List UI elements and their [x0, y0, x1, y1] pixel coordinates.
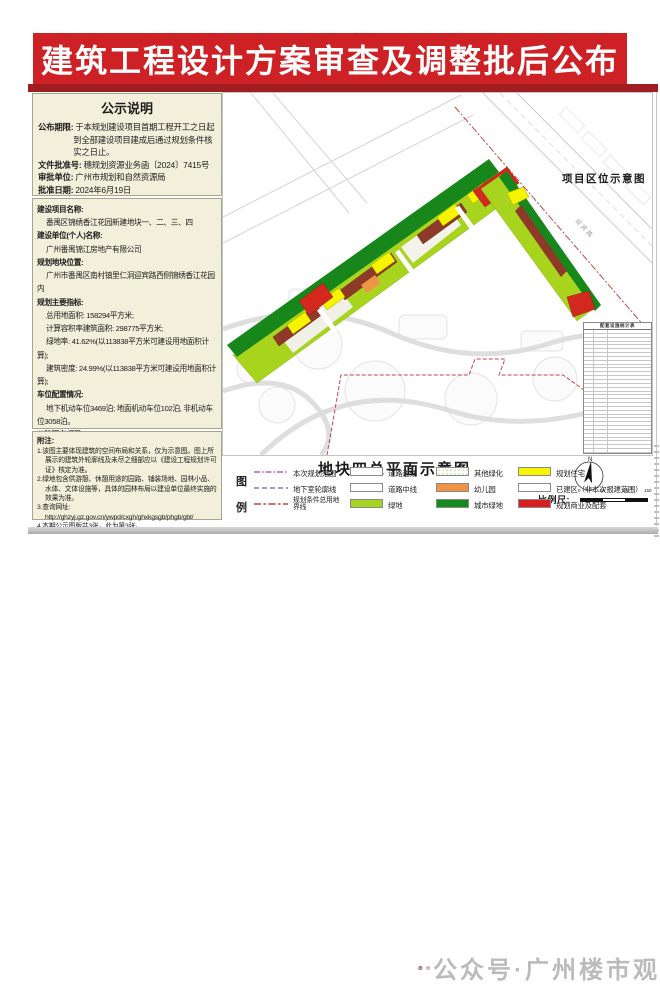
legend-label: 规划条件总用地界线: [293, 497, 345, 512]
legend-label: 城市绿地: [474, 500, 503, 511]
legend-box-symbol: [350, 483, 383, 492]
project-info-line: 广州市番禺区南村镇里仁洞迎宾路西侧锦绣香江花园内: [37, 269, 217, 295]
notice-item-value: 穗规划资源业务函〔2024〕7415号: [81, 159, 216, 172]
legend-label: 道路边线: [388, 468, 417, 479]
watermark: 公众号·广州楼市观: [418, 950, 660, 985]
legend-line-symbol: [254, 486, 288, 490]
project-info-line: 计算容积率建筑面积: 298775平方米;: [37, 322, 217, 335]
legend-label: 绿地: [388, 500, 402, 511]
notes-title: 附注:: [37, 435, 217, 446]
project-info-line: 规划主要指标:: [37, 296, 217, 309]
legend-label: 规划商业及配套: [556, 500, 606, 511]
legend-box-symbol: [518, 483, 551, 492]
location-map-label: 项目区位示意图: [562, 171, 646, 186]
notice-item: 公布期限: 于本规划建设项目首期工程开工之日起到全部建设项目建成后通过规划条件核…: [38, 121, 216, 159]
project-info-line: 地下机动车位3469泊; 地面机动车位102泊, 非机动车位3058泊。: [37, 402, 217, 428]
scale-tick-label: 150: [644, 488, 652, 493]
notice-item-value: 广州市规划和自然资源局: [73, 171, 216, 184]
scale-tick-label: 0: [578, 488, 581, 493]
notice-item: 批准日期: 2024年6月19日: [38, 184, 216, 197]
notice-item-label: 公布期限:: [38, 121, 73, 159]
legend-box-symbol: [350, 467, 383, 476]
legend-box-symbol: [350, 499, 383, 508]
bottom-divider-bar: [28, 527, 658, 534]
legend-line-symbol: [254, 502, 288, 506]
notice-items: 公布期限: 于本规划建设项目首期工程开工之日起到全部建设项目建成后通过规划条件核…: [38, 121, 216, 197]
notice-item-value: 2024年6月19日: [73, 184, 216, 197]
public-notice-panel: 公示说明 公布期限: 于本规划建设项目首期工程开工之日起到全部建设项目建成后通过…: [32, 93, 222, 196]
notice-item-label: 批准日期:: [38, 184, 73, 197]
notice-item-label: 审批单位:: [38, 171, 73, 184]
project-info-line: 总用地面积: 158294平方米;: [37, 309, 217, 322]
notice-item: 审批单位: 广州市规划和自然资源局: [38, 171, 216, 184]
facilities-table-row: [584, 449, 651, 453]
legend-box-symbol: [436, 499, 469, 508]
project-info-panel: 建设项目名称:番禺区锦绣香江花园新建地块一、二、三、四建设单位(个人)名称:广州…: [32, 198, 222, 429]
legend-label: 幼儿园: [474, 484, 496, 495]
page-title: 建筑工程设计方案审查及调整批后公布: [41, 36, 619, 82]
project-info-line: 番禺区锦绣香江花园新建地块一、二、三、四: [37, 216, 217, 229]
project-info-line: 车位配置情况:: [37, 388, 217, 401]
legend-section: 地块四总平面示意图 N 比例尺: 公众号·广州楼市观 图例本次规划范围地下室轮廓…: [0, 455, 660, 535]
watermark-text: 公众号·广州楼市观: [433, 950, 660, 985]
notice-item: 文件批准号: 穗规划资源业务函〔2024〕7415号: [38, 159, 216, 172]
legend-key-char: 例: [236, 499, 247, 515]
legend-label: 本次规划范围: [293, 468, 336, 479]
legend-box-symbol: [436, 483, 469, 492]
project-info-line: 建筑密度: 24.99%(以113838平方米可建设用地面积计算);: [37, 362, 217, 388]
legend-label: 其他绿化: [474, 468, 503, 479]
legend-key-char: 图: [236, 473, 247, 489]
legend-box-symbol: [436, 467, 469, 476]
banner-bottom-strip: [28, 84, 658, 92]
legend-box-symbol: [518, 467, 551, 476]
scale-tick-label: 100: [622, 488, 630, 493]
facilities-table-title: 配套设施统计表: [584, 323, 651, 330]
title-banner: 建筑工程设计方案审查及调整批后公布: [33, 33, 627, 84]
project-info-line: 建设项目名称:: [37, 203, 217, 216]
legend-box-symbol: [518, 499, 551, 508]
project-info-line: 规划地块位置:: [37, 256, 217, 269]
scale-bar-segment: [625, 499, 647, 501]
wechat-face-icon: [418, 958, 423, 978]
notice-item-value: 于本规划建设项目首期工程开工之日起到全部建设项目建成后通过规划条件核实之日止。: [73, 121, 216, 159]
notice-title: 公示说明: [38, 98, 216, 117]
legend-line-symbol: [254, 470, 288, 474]
facilities-table: 配套设施统计表: [583, 322, 652, 454]
wechat-face-icon-2: [426, 959, 430, 977]
notice-item-label: 文件批准号:: [38, 159, 81, 172]
scale-tick-label: 50: [600, 488, 605, 493]
project-info-line: 绿地率: 41.62%(以113838平方米可建设用地面积计算);: [37, 335, 217, 361]
project-info-line: 广州番禺锦江房地产有限公司: [37, 243, 217, 256]
project-info-line: 建设单位(个人)名称:: [37, 229, 217, 242]
legend-label: 地下室轮廓线: [293, 484, 336, 495]
legend-label: 道路中线: [388, 484, 417, 495]
legend-label: 规划住宅: [556, 468, 585, 479]
